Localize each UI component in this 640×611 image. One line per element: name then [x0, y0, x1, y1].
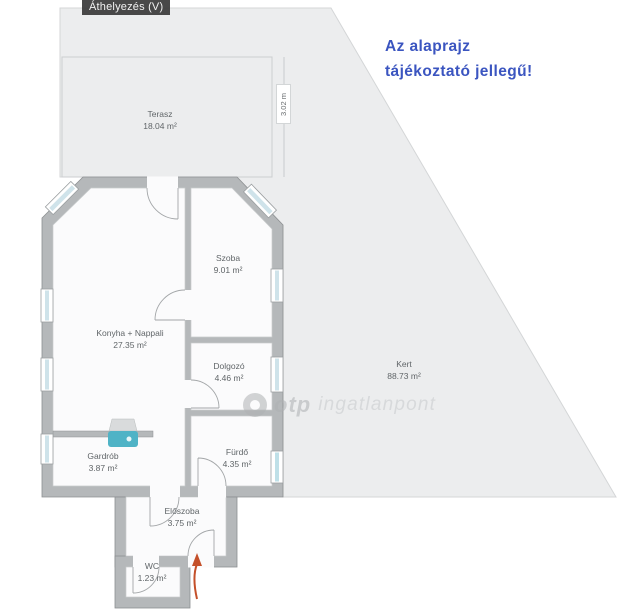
floorplan-drawing: [0, 0, 640, 611]
window-icon: [41, 358, 53, 391]
move-tool-tooltip: Áthelyezés (V): [82, 0, 170, 15]
sink-fixture-icon: [108, 419, 138, 447]
floorplan-canvas[interactable]: Terasz 18.04 m² Szoba 9.01 m² Konyha + N…: [0, 0, 640, 611]
room-label-dolgozo: Dolgozó 4.46 m²: [213, 360, 244, 384]
room-label-konyha-nappali: Konyha + Nappali 27.35 m²: [96, 327, 163, 351]
window-icon: [271, 357, 283, 392]
disclaimer-note: Az alaprajz tájékoztató jellegű!: [385, 34, 533, 84]
dimension-label: 3.02 m: [276, 84, 291, 124]
room-area: 4.46 m²: [213, 372, 244, 384]
window-icon: [41, 434, 53, 464]
room-area: 27.35 m²: [96, 339, 163, 351]
disclaimer-line2: tájékoztató jellegű!: [385, 59, 533, 84]
room-area: 18.04 m²: [143, 120, 177, 132]
room-name: Dolgozó: [213, 361, 244, 371]
room-name: Terasz: [147, 109, 172, 119]
window-icon: [271, 269, 283, 302]
room-name: Kert: [396, 359, 412, 369]
room-name: WC: [145, 561, 159, 571]
room-label-szoba: Szoba 9.01 m²: [214, 252, 243, 276]
room-area: 88.73 m²: [387, 370, 421, 382]
room-interiors: [53, 188, 272, 597]
room-name: Gardrób: [87, 451, 118, 461]
room-name: Fürdő: [226, 447, 248, 457]
room-name: Előszoba: [165, 506, 200, 516]
room-label-furdo: Fürdő 4.35 m²: [223, 446, 252, 470]
room-label-terasz: Terasz 18.04 m²: [143, 108, 177, 132]
room-label-wc: WC 1.23 m²: [138, 560, 167, 584]
room-area: 3.75 m²: [165, 517, 200, 529]
window-icon: [41, 289, 53, 322]
room-label-eloszoba: Előszoba 3.75 m²: [165, 505, 200, 529]
room-area: 3.87 m²: [87, 462, 118, 474]
room-area: 9.01 m²: [214, 264, 243, 276]
room-label-gardrob: Gardrób 3.87 m²: [87, 450, 118, 474]
room-area: 4.35 m²: [223, 458, 252, 470]
room-area: 1.23 m²: [138, 572, 167, 584]
room-name: Konyha + Nappali: [96, 328, 163, 338]
room-label-kert: Kert 88.73 m²: [387, 358, 421, 382]
window-icon: [271, 451, 283, 483]
room-name: Szoba: [216, 253, 240, 263]
disclaimer-line1: Az alaprajz: [385, 34, 533, 59]
